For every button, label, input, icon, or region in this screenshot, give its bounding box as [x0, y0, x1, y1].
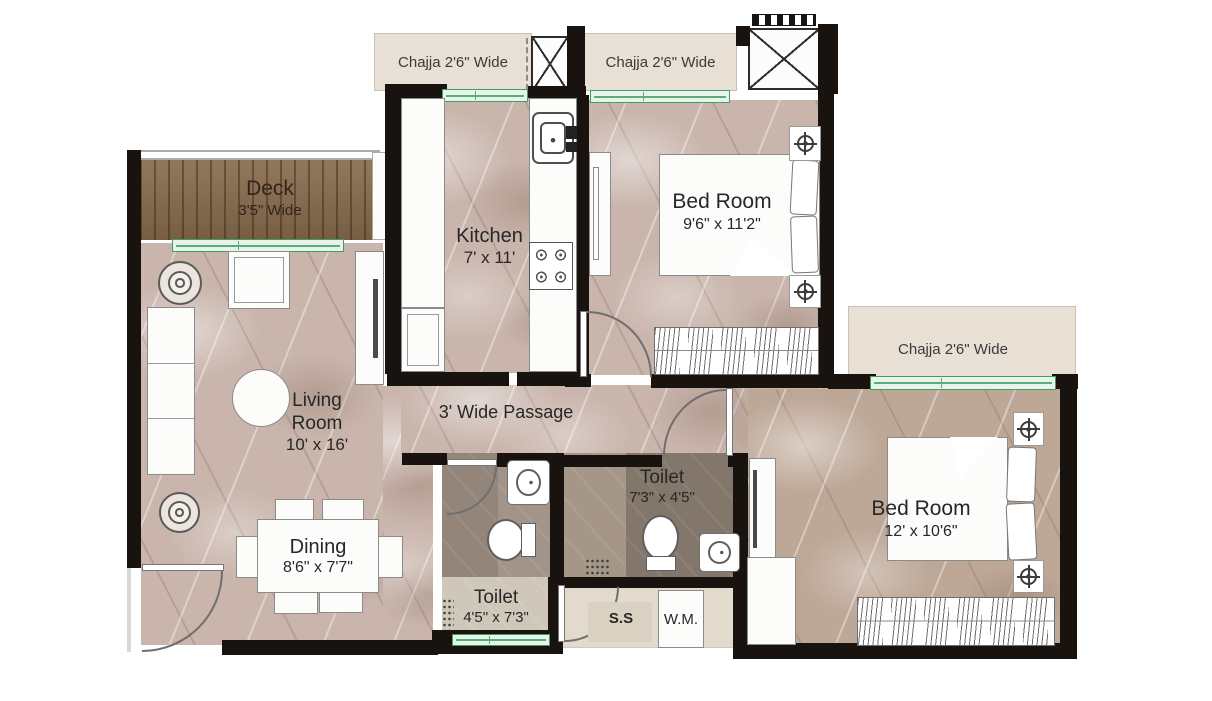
window	[442, 89, 528, 102]
window	[452, 634, 550, 646]
room-name: Toilet	[606, 466, 718, 489]
ceiling-fan-icon	[159, 492, 200, 533]
ceiling-light-icon	[1013, 412, 1044, 446]
room-dims: 7' x 11'	[417, 248, 562, 269]
toilet-small-door-leaf	[726, 388, 733, 456]
wc-icon	[487, 519, 525, 561]
wall	[222, 640, 438, 655]
deck-railing	[140, 150, 380, 160]
dining-chair	[322, 499, 364, 520]
dining-chair	[236, 536, 259, 578]
wall	[567, 26, 585, 92]
armchair	[228, 251, 290, 309]
bedroom-right-label: Bed Room 12' x 10'6"	[857, 496, 985, 541]
chajja-right-label: Chajja 2'6" Wide	[848, 340, 1058, 360]
mirror	[593, 167, 599, 260]
room-name: Toilet	[440, 586, 552, 609]
living-room-label: Living Room 10' x 16'	[258, 389, 376, 456]
ceiling-light-icon	[789, 126, 821, 161]
passage-text: 3' Wide Passage	[439, 402, 574, 422]
utility-door-leaf	[558, 585, 565, 642]
side-table	[747, 557, 796, 645]
wall	[651, 374, 834, 388]
washbasin-icon	[699, 533, 740, 572]
wardrobe	[857, 597, 1055, 646]
ceiling-fan-icon	[158, 261, 202, 305]
bedroom-top-door-leaf	[580, 311, 587, 377]
chajja-text: Chajja 2'6" Wide	[606, 54, 716, 71]
deck-side-column	[372, 152, 386, 240]
room-name: Deck	[195, 176, 345, 202]
wardrobe	[654, 327, 819, 375]
room-dims: 12' x 10'6"	[857, 522, 985, 542]
toilet-long-door-leaf	[447, 459, 497, 466]
room-dims: 7'3" x 4'5"	[606, 489, 718, 507]
wc-icon	[642, 515, 679, 560]
washbasin-icon	[507, 460, 550, 505]
wall	[127, 245, 141, 568]
wall	[387, 372, 509, 386]
chajja-top-right-label: Chajja 2'6" Wide	[584, 53, 737, 73]
ceiling-light-icon	[789, 275, 821, 308]
dining-table: Dining 8'6" x 7'7"	[257, 519, 379, 593]
room-dims: 10' x 16'	[258, 435, 376, 456]
ceiling-light-icon	[1013, 560, 1044, 593]
window	[590, 90, 730, 103]
pillow	[1006, 502, 1038, 560]
chajja-text: Chajja 2'6" Wide	[898, 341, 1008, 358]
room-name: Bed Room	[857, 496, 985, 522]
wc-tank	[646, 556, 676, 571]
toilet-long-label: Toilet 4'5" x 7'3"	[440, 586, 552, 627]
wall	[402, 453, 447, 465]
wall	[1060, 374, 1077, 659]
wall-outline	[127, 568, 131, 652]
wall	[385, 84, 401, 374]
wm-text: W.M.	[664, 611, 698, 628]
pillow	[1006, 447, 1037, 503]
tv-icon	[373, 279, 378, 358]
duct-shaft-icon	[748, 28, 820, 90]
duct-shaft-icon	[531, 36, 569, 92]
kitchen-label: Kitchen 7' x 11'	[417, 224, 562, 269]
pillow	[790, 159, 820, 215]
pillow	[790, 216, 819, 274]
tv-icon	[753, 470, 757, 548]
wall	[127, 150, 141, 245]
dining-chair	[275, 499, 314, 520]
dining-chair	[378, 536, 403, 578]
shower-icon	[585, 558, 609, 576]
washing-machine: W.M.	[658, 590, 704, 648]
chajja-top-left-label: Chajja 2'6" Wide	[374, 53, 532, 73]
tv-unit	[355, 251, 384, 385]
kitchen-counter	[401, 98, 445, 308]
room-name: Kitchen	[417, 224, 562, 248]
chajja-text: Chajja 2'6" Wide	[398, 54, 508, 71]
refrigerator	[401, 308, 445, 372]
bedroom-top-label: Bed Room 9'6" x 11'2"	[657, 189, 787, 234]
wall	[736, 26, 750, 46]
room-dims: 3'5" Wide	[195, 202, 345, 220]
wall	[550, 455, 564, 579]
room-dims: 9'6" x 11'2"	[657, 215, 787, 235]
room-name: Living Room	[277, 389, 357, 435]
tap-icon	[566, 142, 577, 152]
floor-plan: Dining 8'6" x 7'7" Bed Room 9'6" x 11'2"…	[0, 0, 1212, 701]
wall	[828, 374, 876, 389]
window	[870, 376, 1056, 390]
dining-chair	[319, 592, 363, 613]
duct-hatch-strip	[752, 14, 816, 26]
dining-dims: 8'6" x 7'7"	[283, 559, 353, 577]
room-name: Bed Room	[657, 189, 787, 215]
wall	[820, 24, 838, 94]
main-door-leaf	[142, 564, 224, 571]
sofa	[147, 307, 195, 475]
passage-label: 3' Wide Passage	[415, 402, 597, 424]
ss-text: S.S	[609, 610, 633, 627]
wc-tank	[521, 523, 536, 557]
room-dims: 4'5" x 7'3"	[440, 609, 552, 627]
toilet-small-label: Toilet 7'3" x 4'5"	[606, 466, 718, 507]
service-slab-label: S.S	[596, 609, 646, 629]
deck-label: Deck 3'5" Wide	[195, 176, 345, 220]
dining-chair	[274, 592, 318, 614]
tap-icon	[566, 126, 577, 139]
dining-label: Dining	[290, 536, 347, 559]
